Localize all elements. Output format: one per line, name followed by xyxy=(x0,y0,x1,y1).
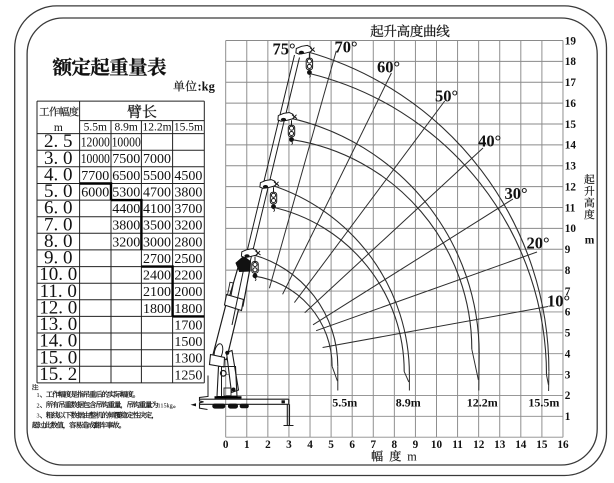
svg-text:1: 1 xyxy=(37,392,40,399)
svg-text:5500: 5500 xyxy=(143,169,171,184)
svg-text:1300: 1300 xyxy=(174,352,202,367)
svg-text:1250: 1250 xyxy=(174,368,202,383)
svg-text:6: 6 xyxy=(349,439,355,451)
svg-text:1700: 1700 xyxy=(174,318,202,333)
svg-text:5300: 5300 xyxy=(112,186,140,201)
svg-text:15.5m: 15.5m xyxy=(174,122,203,134)
svg-text:6500: 6500 xyxy=(112,169,140,184)
svg-text:10: 10 xyxy=(431,439,443,451)
svg-text:7: 7 xyxy=(371,439,377,451)
svg-text:m: m xyxy=(407,450,417,464)
svg-text:8: 8 xyxy=(565,265,571,277)
svg-text:2700: 2700 xyxy=(143,252,171,267)
svg-text:3800: 3800 xyxy=(112,219,140,234)
svg-text:5.5m: 5.5m xyxy=(332,395,357,409)
svg-text:15.5m: 15.5m xyxy=(528,395,559,409)
svg-text:20°: 20° xyxy=(526,234,549,253)
svg-text:3200: 3200 xyxy=(112,235,140,250)
svg-text::kg: :kg xyxy=(198,80,216,94)
svg-text:2400: 2400 xyxy=(143,269,171,284)
svg-text:2: 2 xyxy=(265,439,271,451)
svg-text:2: 2 xyxy=(565,390,571,402)
svg-text:9: 9 xyxy=(565,244,571,256)
svg-text:8.9m: 8.9m xyxy=(115,122,138,134)
svg-text:16: 16 xyxy=(565,98,577,110)
svg-text:14: 14 xyxy=(565,140,577,152)
svg-text:12: 12 xyxy=(473,439,485,451)
svg-text:4400: 4400 xyxy=(112,202,140,217)
svg-text:3500: 3500 xyxy=(143,219,171,234)
svg-text:7500: 7500 xyxy=(112,152,140,167)
svg-text:11: 11 xyxy=(452,439,463,451)
svg-text:50°: 50° xyxy=(435,87,458,106)
svg-text:70°: 70° xyxy=(334,38,357,57)
svg-text:5: 5 xyxy=(328,439,334,451)
svg-text:10000: 10000 xyxy=(81,152,110,167)
svg-text:m: m xyxy=(585,234,595,246)
svg-text:15. 2: 15. 2 xyxy=(39,364,77,385)
svg-text:15: 15 xyxy=(536,439,548,451)
svg-text:115kg: 115kg xyxy=(158,402,173,409)
svg-text:5.5m: 5.5m xyxy=(84,122,107,134)
svg-text:3200: 3200 xyxy=(174,219,202,234)
svg-text:12.2m: 12.2m xyxy=(467,395,498,409)
svg-text:4700: 4700 xyxy=(143,186,171,201)
svg-text:2: 2 xyxy=(37,402,40,409)
svg-text:12: 12 xyxy=(565,181,577,193)
svg-text:16: 16 xyxy=(557,439,569,451)
svg-text:19: 19 xyxy=(565,35,577,47)
svg-text:10°: 10° xyxy=(547,291,570,310)
svg-text:3700: 3700 xyxy=(174,202,202,217)
svg-text:8: 8 xyxy=(392,439,398,451)
svg-text:18: 18 xyxy=(565,56,577,68)
svg-text:3800: 3800 xyxy=(174,186,202,201)
svg-text:2000: 2000 xyxy=(174,285,202,300)
svg-text:75°: 75° xyxy=(272,39,295,58)
svg-text:3000: 3000 xyxy=(143,235,171,250)
svg-text:3: 3 xyxy=(37,413,40,420)
svg-text:1: 1 xyxy=(565,411,571,423)
svg-text:15: 15 xyxy=(565,119,577,131)
svg-text:2100: 2100 xyxy=(143,285,171,300)
svg-text:2200: 2200 xyxy=(174,269,202,284)
svg-text:12000: 12000 xyxy=(81,136,110,151)
svg-text:60°: 60° xyxy=(377,58,400,77)
svg-text:13: 13 xyxy=(494,439,506,451)
svg-text:4500: 4500 xyxy=(174,169,202,184)
svg-text:6000: 6000 xyxy=(81,186,109,201)
svg-text:4: 4 xyxy=(565,349,571,361)
svg-text:1800: 1800 xyxy=(174,302,202,317)
svg-text:5: 5 xyxy=(565,328,571,340)
svg-text:10000: 10000 xyxy=(112,136,141,151)
svg-text:17: 17 xyxy=(565,77,577,89)
svg-text:1800: 1800 xyxy=(143,302,171,317)
svg-text:4: 4 xyxy=(307,439,313,451)
svg-text:0: 0 xyxy=(223,439,229,451)
svg-text:2500: 2500 xyxy=(174,252,202,267)
svg-text:2800: 2800 xyxy=(174,235,202,250)
svg-text:11: 11 xyxy=(565,202,576,214)
svg-text:30°: 30° xyxy=(504,184,527,203)
svg-text:10: 10 xyxy=(565,223,577,235)
svg-text:4100: 4100 xyxy=(143,202,171,217)
svg-text:1: 1 xyxy=(244,439,250,451)
svg-text:3: 3 xyxy=(286,439,292,451)
svg-text:12.2m: 12.2m xyxy=(142,122,171,134)
svg-text:13: 13 xyxy=(565,161,577,173)
svg-text:8.9m: 8.9m xyxy=(396,395,421,409)
svg-text:1500: 1500 xyxy=(174,335,202,350)
svg-text:7000: 7000 xyxy=(143,152,171,167)
svg-text:7700: 7700 xyxy=(81,169,109,184)
svg-text::: : xyxy=(37,385,39,392)
svg-text:40°: 40° xyxy=(478,132,501,151)
svg-text:14: 14 xyxy=(515,439,527,451)
svg-text:3: 3 xyxy=(565,369,571,381)
